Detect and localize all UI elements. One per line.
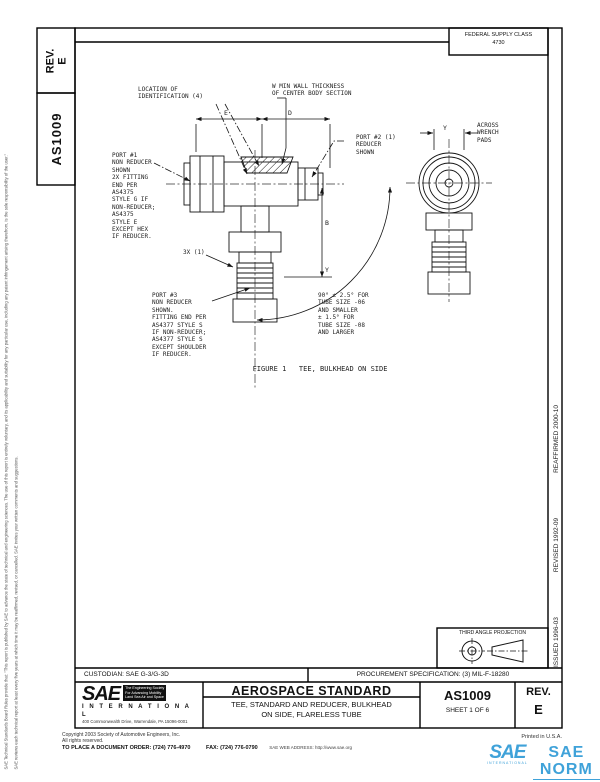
rev-box-label: REV. (44, 48, 56, 73)
fsc-label: FEDERAL SUPPLY CLASS (449, 31, 548, 39)
sae-tagline: The Engineering Society For Advancing Mo… (123, 685, 166, 701)
wall-thickness-label: W MIN WALL THICKNESS OF CENTER BODY SECT… (272, 83, 351, 98)
sae-logo-block: SAE The Engineering Society For Advancin… (82, 685, 200, 725)
port1-label: PORT #1 NON REDUCER SHOWN 2X FITTING END… (112, 152, 155, 241)
document-title: TEE, STANDARD AND REDUCER, BULKHEAD ON S… (203, 700, 420, 720)
web-address: SAE WEB ADDRESS: http://www.sae.org (269, 745, 352, 750)
watermark-name: SAE NORM (533, 744, 600, 778)
dim-y-side: Y (443, 125, 447, 132)
disclaimer-column-2: SAE reviews each technical report at lea… (12, 140, 21, 770)
disclaimer-text-1: SAE Technical Standards Board Rules prov… (4, 154, 9, 770)
order-phone: (724) 776-4970 (153, 745, 191, 751)
watermark-sae-logo: SAE (487, 744, 528, 761)
order-label: TO PLACE A DOCUMENT ORDER: (62, 745, 151, 751)
doc-number-vertical: AS1009 (49, 113, 64, 166)
fax-phone: (724) 776-0790 (220, 745, 258, 751)
sae-address: 400 Commonwealth Drive, Warrendale, PA 1… (82, 719, 200, 725)
revised-date: REVISED 1992-09 (553, 518, 560, 572)
dim-y-main: Y (325, 267, 329, 274)
procurement-spec-cell: PROCUREMENT SPECIFICATION: (3) MIL-F-182… (308, 671, 558, 679)
custodian-cell: CUSTODIAN: SAE G-3/G-3D (84, 671, 169, 679)
dim-b: B (325, 220, 329, 227)
sheet-number: SHEET 1 OF 6 (420, 707, 515, 715)
fax-label: FAX: (206, 745, 219, 751)
across-wrench-pads-label: ACROSS WRENCH PADS (477, 122, 499, 144)
aerospace-standard-heading: AEROSPACE STANDARD (203, 684, 420, 700)
dim-e: E (224, 110, 228, 117)
watermark-international: INTERNATIONAL (487, 761, 528, 765)
figure-caption: FIGURE 1 TEE, BULKHEAD ON SIDE (180, 366, 460, 373)
federal-supply-class-box: FEDERAL SUPPLY CLASS 4730 (449, 31, 548, 47)
disclaimer-column-1: SAE Technical Standards Board Rules prov… (2, 140, 11, 770)
doc-number-cell: AS1009 (420, 688, 515, 704)
centerlines (166, 139, 492, 388)
sae-norm-watermark: SAE INTERNATIONAL SAE NORM (487, 744, 600, 782)
disclaimer-text-2: SAE reviews each technical report at lea… (14, 456, 19, 769)
doc-number-box: AS1009 (37, 93, 75, 185)
sae-logo: SAE (82, 685, 120, 703)
third-angle-projection-symbol (459, 638, 528, 664)
revision-history-margin: ISSUED 1996-03 REVISED 1992-09 REAFFIRME… (549, 27, 563, 669)
port3-label: PORT #3 NON REDUCER SHOWN. FITTING END P… (152, 292, 206, 359)
rev-box-value: E (56, 48, 68, 73)
dimension-lines (154, 98, 478, 320)
rev-cell-label: REV. (515, 686, 562, 700)
angle-tolerance-label: 90° ± 2.5° FOR TUBE SIZE -06 AND SMALLER… (318, 292, 369, 336)
dim-d: D (288, 110, 292, 117)
copyright-line-2: All rights reserved. (62, 738, 103, 744)
order-line: TO PLACE A DOCUMENT ORDER: (724) 776-497… (62, 745, 352, 752)
printed-in-usa: Printed in U.S.A. (480, 734, 562, 741)
technical-drawing (0, 0, 600, 776)
location-of-identification-label: LOCATION OF IDENTIFICATION (4) (138, 86, 203, 101)
rev-box: REV. E (37, 28, 75, 93)
issued-date: ISSUED 1996-03 (553, 617, 560, 667)
sae-international-label: I N T E R N A T I O N A L (82, 703, 200, 719)
fsc-value: 4730 (449, 39, 548, 47)
port2-label: PORT #2 (1) REDUCER SHOWN (356, 134, 396, 156)
third-angle-projection-title: THIRD ANGLE PROJECTION (439, 630, 546, 636)
places-note-label: 3X (1) (183, 249, 205, 256)
rev-cell-value: E (515, 702, 562, 718)
reaffirmed-date: REAFFIRMED 2000-10 (553, 405, 560, 473)
